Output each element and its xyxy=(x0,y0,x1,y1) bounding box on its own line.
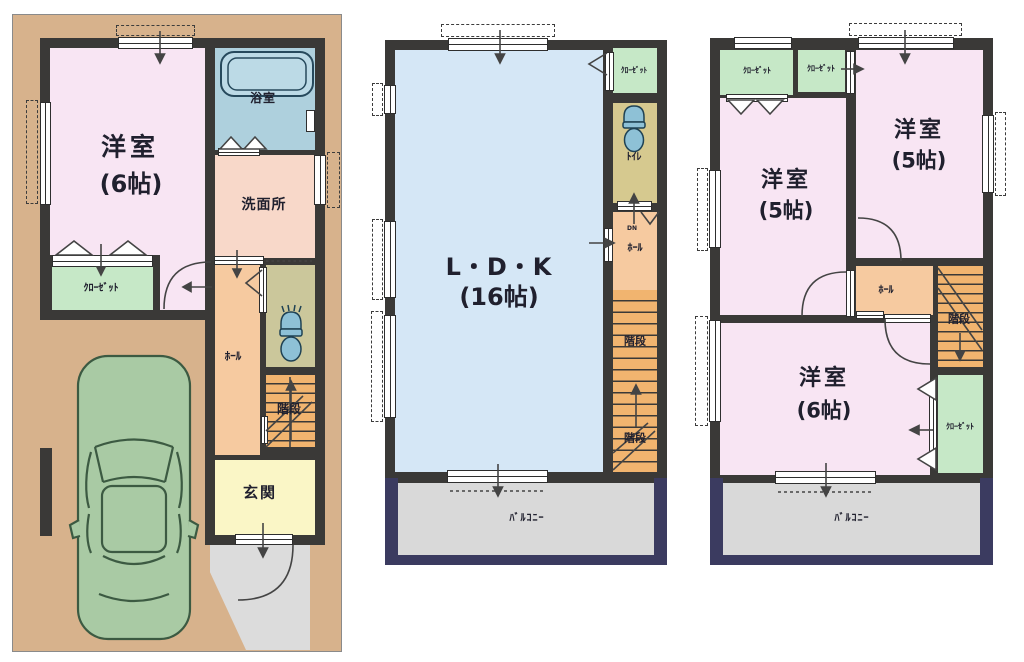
floor3-hall-label: ﾎｰﾙ xyxy=(879,286,894,296)
floor3-window-right-dashed xyxy=(995,112,1006,196)
floor3-balcony-frame-bottom xyxy=(710,555,993,565)
floor3-western6-label: 洋室 xyxy=(799,368,849,390)
floor3-closetB-label: ｸﾛｰｾﾞｯﾄ xyxy=(807,65,835,73)
floor2-stairs-label-lower: 階段 xyxy=(624,433,646,444)
floor1-western6-size: (6帖) xyxy=(100,172,163,196)
floor2-closet-door xyxy=(605,52,614,91)
floor1-closet-door xyxy=(52,255,153,267)
floor3-room-hall xyxy=(856,266,933,315)
floor1-washroom-label: 洗面所 xyxy=(242,198,287,212)
floor2-window-balcony xyxy=(447,470,548,483)
floor3-western5a-size: (5帖) xyxy=(759,201,814,222)
floor3-western5b-label: 洋室 xyxy=(894,120,944,142)
floor3-window-left-a xyxy=(709,170,721,248)
floor2-window-left-c-dashed xyxy=(371,311,383,422)
floor3-hall-opening xyxy=(856,311,884,319)
floor3-closetC-label: ｸﾛｰｾﾞｯﾄ xyxy=(946,423,974,431)
floor1-stairs-opening xyxy=(261,416,268,444)
floor3-closetB-door xyxy=(846,51,855,94)
floor1-hall-label: ﾎｰﾙ xyxy=(225,351,242,362)
floor2-stairs xyxy=(613,290,657,472)
floor1-bath-door xyxy=(218,148,260,156)
floor2-balcony-label: ﾊﾞﾙｺﾆｰ xyxy=(510,514,545,524)
floor3-window-right xyxy=(982,115,994,193)
floor1-room-toilet xyxy=(266,265,315,367)
floor1-window-top xyxy=(118,37,193,49)
floor2-window-left-a-dashed xyxy=(372,83,383,116)
floor1-entrance-label: 玄関 xyxy=(243,486,277,501)
floor2-eave-dashed xyxy=(441,24,555,37)
floor2-ldk-size: (16帖) xyxy=(459,285,538,309)
floor2-window-left-b xyxy=(384,221,396,298)
floor3-western5a-door xyxy=(846,270,855,317)
floor3-balcony-frame-right xyxy=(980,478,993,565)
floor1-bath-handle xyxy=(306,110,315,132)
floor3-closetA-door xyxy=(726,94,788,102)
floor3-window-top xyxy=(858,37,954,49)
floor3-window-closetA xyxy=(734,37,792,49)
floor1-driveway-marker xyxy=(40,448,52,536)
floor3-balcony-label: ﾊﾞﾙｺﾆｰ xyxy=(835,514,870,524)
floor1-shutter-dashed-left xyxy=(26,100,38,204)
floor2-hall-opening xyxy=(604,228,613,262)
floor3-western6-door xyxy=(884,314,931,323)
floor3-eave-dashed xyxy=(849,23,962,36)
floor2-toilet-door xyxy=(617,201,652,211)
floor2-window-left-b-dashed xyxy=(372,219,383,300)
floor1-stairs-label: 階段 xyxy=(277,403,301,415)
floor1-western6-label: 洋室 xyxy=(101,135,159,160)
floor3-closetC-door xyxy=(929,383,937,465)
floor1-bath-label: 浴室 xyxy=(250,92,276,104)
floor3-window-left-b-dashed xyxy=(695,316,708,426)
floor2-toilet-label: ﾄｲﾚ xyxy=(627,153,642,163)
floor3-window-balcony xyxy=(775,471,876,484)
floor3-western5a-label: 洋室 xyxy=(761,170,811,192)
floor2-window-left-c xyxy=(384,315,396,418)
floor2-balcony-frame-bottom xyxy=(385,555,667,565)
floor1-window-left xyxy=(40,102,51,205)
floor2-hall-label: ﾎｰﾙ xyxy=(628,244,643,254)
floor1-window-washroom-dashed xyxy=(327,152,340,208)
floor2-ldk-label: L・D・K xyxy=(446,255,553,279)
floor3-stairs-label: 階段 xyxy=(948,314,970,325)
floor1-window-washroom xyxy=(314,155,326,205)
floor1-room-western6-ext xyxy=(160,255,205,310)
floor3-closetA-label: ｸﾛｰｾﾞｯﾄ xyxy=(743,67,771,75)
floor2-stairs-label-upper: 階段 xyxy=(624,336,646,347)
floor3-window-left-a-dashed xyxy=(697,168,708,251)
floor1-eave-dashed xyxy=(116,25,195,36)
floor1-washroom-door xyxy=(214,256,264,265)
floor3-balcony-frame-left xyxy=(710,478,723,565)
floor2-dn-label: DN xyxy=(627,226,637,232)
floor2-balcony-frame-left xyxy=(385,478,398,565)
floor-plan-canvas: 洋室 (6帖) 浴室 洗面所 ｸﾛｰｾﾞｯﾄ ﾎｰﾙ 階段 玄関 L・D・K (… xyxy=(0,0,1024,662)
floor3-western5b-size: (5帖) xyxy=(892,151,947,172)
floor2-closet-label: ｸﾛｰｾﾞｯﾄ xyxy=(621,66,647,74)
floor2-balcony-frame-right xyxy=(654,478,667,565)
floor2-window-top xyxy=(448,38,548,51)
floor2-window-left-a xyxy=(384,85,396,114)
floor1-toilet-door xyxy=(259,267,267,313)
floor3-window-left-b xyxy=(709,320,721,422)
floor3-western6-size: (6帖) xyxy=(797,401,852,422)
floor1-entrance-door xyxy=(235,534,293,545)
floor1-closet-label: ｸﾛｰｾﾞｯﾄ xyxy=(84,284,119,294)
